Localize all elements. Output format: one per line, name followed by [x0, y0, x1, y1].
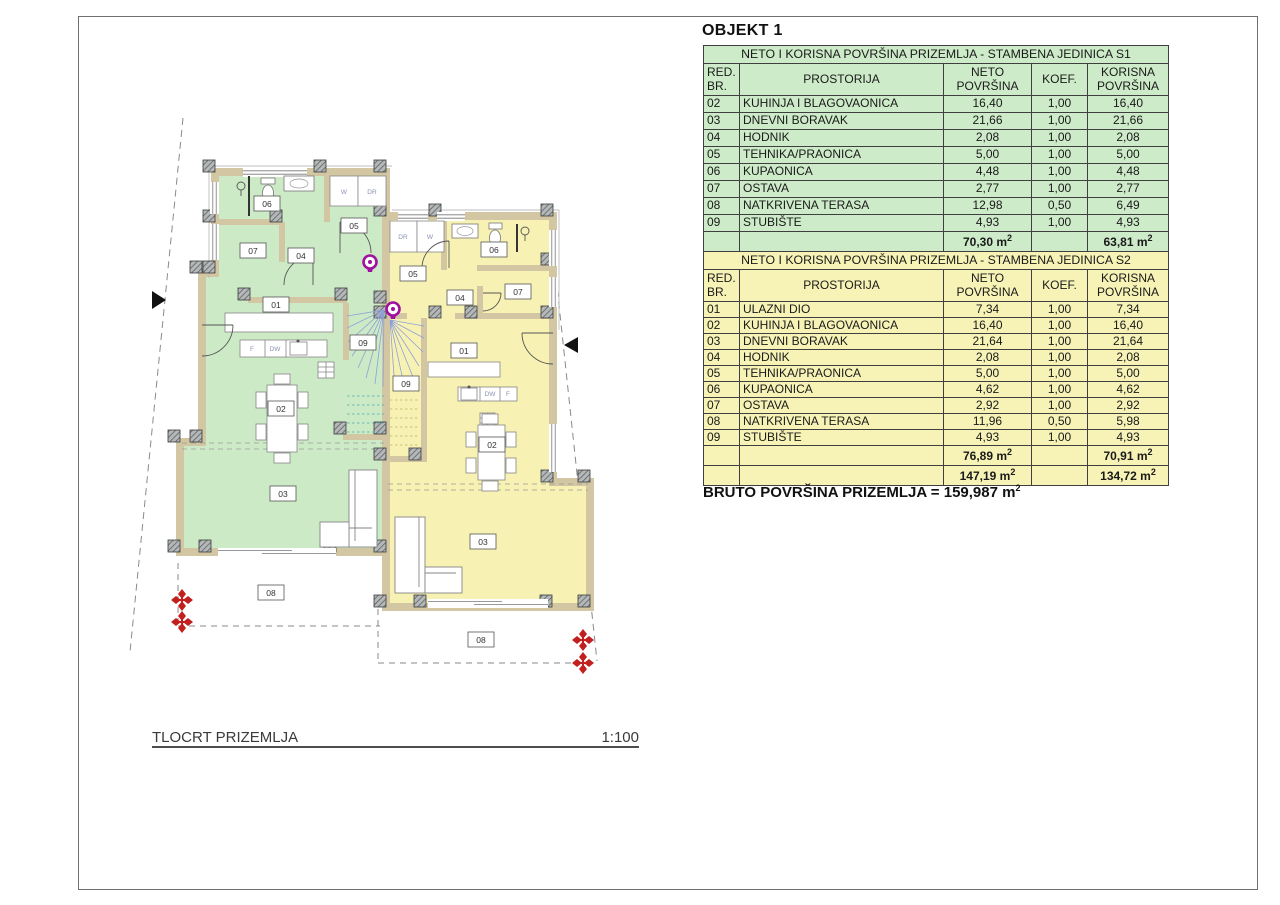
cell-empty [740, 446, 944, 466]
cell-br: 03 [704, 113, 740, 130]
table-row: 09STUBIŠTE4,931,004,93 [704, 430, 1169, 446]
cell-name: HODNIK [740, 350, 944, 366]
cell-neto: 12,98 [944, 198, 1032, 215]
cell-name: NATKRIVENA TERASA [740, 198, 944, 215]
entry-arrow-s1 [152, 291, 166, 309]
dryer-label: DR [398, 234, 408, 241]
table-row: 04HODNIK2,081,002,08 [704, 130, 1169, 147]
svg-text:08: 08 [266, 588, 276, 598]
svg-text:01: 01 [271, 300, 281, 310]
cell-korisna: 2,08 [1088, 350, 1169, 366]
table-s2-header-row: RED.BR. PROSTORIJA NETOPOVRŠINA KOEF. KO… [704, 270, 1169, 302]
cell-name: KUPAONICA [740, 164, 944, 181]
cell-korisna: 2,77 [1088, 181, 1169, 198]
cell-name: ULAZNI DIO [740, 302, 944, 318]
room-label-s1-04: 04 [288, 248, 314, 263]
room-label-s2-01: 01 [451, 343, 477, 358]
table-s1-title-row: NETO I KORISNA POVRŠINA PRIZEMLJA - STAM… [704, 46, 1169, 64]
washer-dryer-s2: DR W [390, 221, 444, 252]
cell-br: 01 [704, 302, 740, 318]
table-row: 02KUHINJA I BLAGOVAONICA16,401,0016,40 [704, 96, 1169, 113]
svg-text:08: 08 [476, 635, 486, 645]
cell-name: KUPAONICA [740, 382, 944, 398]
table-row: 07OSTAVA2,771,002,77 [704, 181, 1169, 198]
cell-neto: 21,64 [944, 334, 1032, 350]
cell-name: TEHNIKA/PRAONICA [740, 366, 944, 382]
table-row: 05TEHNIKA/PRAONICA5,001,005,00 [704, 366, 1169, 382]
table-row: 03DNEVNI BORAVAK21,641,0021,64 [704, 334, 1169, 350]
svg-text:07: 07 [248, 246, 258, 256]
cell-koef: 1,00 [1032, 334, 1088, 350]
title-block: TLOCRT PRIZEMLJA 1:100 [152, 724, 639, 748]
cell-korisna: 2,92 [1088, 398, 1169, 414]
col-header-redbr: RED.BR. [704, 64, 740, 96]
cell-neto: 4,48 [944, 164, 1032, 181]
svg-text:03: 03 [478, 537, 488, 547]
dryer-label: DR [367, 189, 377, 196]
cell-br: 02 [704, 96, 740, 113]
col-header-neto: NETOPOVRŠINA [944, 64, 1032, 96]
cell-koef: 1,00 [1032, 96, 1088, 113]
cell-total-korisna: 63,81 m2 [1088, 232, 1169, 252]
room-label-s2-09: 09 [393, 376, 419, 391]
cell-koef: 1,00 [1032, 302, 1088, 318]
col-header-prostorija: PROSTORIJA [740, 64, 944, 96]
cell-total-neto: 76,89 m2 [944, 446, 1032, 466]
cell-korisna: 7,34 [1088, 302, 1169, 318]
washer-dryer-s1: W DR [330, 176, 386, 206]
cell-korisna: 2,08 [1088, 130, 1169, 147]
svg-text:06: 06 [489, 245, 499, 255]
room-label-s1-08: 08 [258, 585, 284, 600]
col-header-korisna: KORISNAPOVRŠINA [1088, 270, 1169, 302]
room-label-s1-07: 07 [240, 243, 266, 258]
cell-name: OSTAVA [740, 398, 944, 414]
cell-br: 09 [704, 430, 740, 446]
room-label-s2-03: 03 [470, 534, 496, 549]
col-header-neto: NETOPOVRŠINA [944, 270, 1032, 302]
cell-korisna: 4,48 [1088, 164, 1169, 181]
cell-name: DNEVNI BORAVAK [740, 334, 944, 350]
table-row: 01ULAZNI DIO7,341,007,34 [704, 302, 1169, 318]
cell-koef: 1,00 [1032, 181, 1088, 198]
cell-name: HODNIK [740, 130, 944, 147]
cell-neto: 4,62 [944, 382, 1032, 398]
svg-text:05: 05 [408, 269, 418, 279]
cell-neto: 2,08 [944, 130, 1032, 147]
cell-br: 06 [704, 164, 740, 181]
table-row: 02KUHINJA I BLAGOVAONICA16,401,0016,40 [704, 318, 1169, 334]
table-row: 07OSTAVA2,921,002,92 [704, 398, 1169, 414]
col-header-koef: KOEF. [1032, 270, 1088, 302]
cell-br: 06 [704, 382, 740, 398]
cell-br: 03 [704, 334, 740, 350]
survey-marker-icon [572, 652, 594, 674]
cell-empty [1032, 466, 1088, 486]
room-label-s2-04: 04 [447, 290, 473, 305]
svg-text:05: 05 [349, 221, 359, 231]
cell-name: STUBIŠTE [740, 430, 944, 446]
cell-korisna: 4,93 [1088, 215, 1169, 232]
svg-text:07: 07 [513, 287, 523, 297]
col-header-redbr: RED.BR. [704, 270, 740, 302]
cell-koef: 1,00 [1032, 130, 1088, 147]
table-s1-total-row: 70,30 m2 63,81 m2 [704, 232, 1169, 252]
cell-koef: 1,00 [1032, 430, 1088, 446]
fridge-label: F [250, 346, 254, 353]
cell-korisna: 4,62 [1088, 382, 1169, 398]
cell-koef: 0,50 [1032, 198, 1088, 215]
cell-br: 05 [704, 147, 740, 164]
cell-name: OSTAVA [740, 181, 944, 198]
cell-neto: 11,96 [944, 414, 1032, 430]
cell-neto: 4,93 [944, 215, 1032, 232]
table-row: 05TEHNIKA/PRAONICA5,001,005,00 [704, 147, 1169, 164]
table-row: 08NATKRIVENA TERASA11,960,505,98 [704, 414, 1169, 430]
cell-br: 07 [704, 181, 740, 198]
svg-text:02: 02 [276, 404, 286, 414]
room-label-s2-08: 08 [468, 632, 494, 647]
survey-marker-icon [572, 629, 594, 651]
cell-neto: 7,34 [944, 302, 1032, 318]
cell-grand-korisna: 134,72 m2 [1088, 466, 1169, 486]
cell-neto: 4,93 [944, 430, 1032, 446]
fridge-label: F [506, 391, 510, 398]
cell-name: DNEVNI BORAVAK [740, 113, 944, 130]
table-row: 04HODNIK2,081,002,08 [704, 350, 1169, 366]
cell-korisna: 6,49 [1088, 198, 1169, 215]
cell-br: 08 [704, 198, 740, 215]
cell-br: 04 [704, 130, 740, 147]
entry-arrow-s2 [564, 337, 578, 353]
survey-marker-icon [171, 589, 193, 611]
svg-text:04: 04 [455, 293, 465, 303]
room-label-s1-01: 01 [263, 297, 289, 312]
cell-korisna: 16,40 [1088, 318, 1169, 334]
table-s2-total-row: 76,89 m2 70,91 m2 [704, 446, 1169, 466]
col-header-korisna: KORISNAPOVRŠINA [1088, 64, 1169, 96]
cell-neto: 5,00 [944, 366, 1032, 382]
table-row: 08NATKRIVENA TERASA12,980,506,49 [704, 198, 1169, 215]
room-label-s2-02: 02 [479, 437, 505, 452]
table-s1-header-row: RED.BR. PROSTORIJA NETOPOVRŠINA KOEF. KO… [704, 64, 1169, 96]
bruto-area-text: BRUTO POVRŠINA PRIZEMLJA = 159,987 m2 [703, 483, 1020, 501]
table-s1: NETO I KORISNA POVRŠINA PRIZEMLJA - STAM… [703, 45, 1169, 252]
cell-neto: 16,40 [944, 318, 1032, 334]
svg-text:06: 06 [262, 199, 272, 209]
room-label-s2-06: 06 [481, 242, 507, 257]
cell-koef: 1,00 [1032, 366, 1088, 382]
cell-koef: 1,00 [1032, 318, 1088, 334]
drawing-title: TLOCRT PRIZEMLJA [152, 729, 298, 746]
cell-neto: 2,77 [944, 181, 1032, 198]
table-row: 03DNEVNI BORAVAK21,661,0021,66 [704, 113, 1169, 130]
cell-name: KUHINJA I BLAGOVAONICA [740, 96, 944, 113]
room-label-s2-05: 05 [400, 266, 426, 281]
cell-name: TEHNIKA/PRAONICA [740, 147, 944, 164]
cell-br: 09 [704, 215, 740, 232]
table-s2-title-row: NETO I KORISNA POVRŠINA PRIZEMLJA - STAM… [704, 252, 1169, 270]
table-row: 09STUBIŠTE4,931,004,93 [704, 215, 1169, 232]
table-row: 06KUPAONICA4,621,004,62 [704, 382, 1169, 398]
objekt-title: OBJEKT 1 [702, 22, 783, 40]
cell-name: KUHINJA I BLAGOVAONICA [740, 318, 944, 334]
drawing-scale: 1:100 [601, 729, 639, 746]
cell-neto: 2,92 [944, 398, 1032, 414]
cell-koef: 0,50 [1032, 414, 1088, 430]
washer-label: W [341, 189, 348, 196]
table-s2-title: NETO I KORISNA POVRŠINA PRIZEMLJA - STAM… [704, 252, 1169, 270]
cell-koef: 1,00 [1032, 398, 1088, 414]
cell-total-neto: 70,30 m2 [944, 232, 1032, 252]
cell-br: 02 [704, 318, 740, 334]
cell-korisna: 5,00 [1088, 366, 1169, 382]
cell-empty [704, 232, 740, 252]
survey-marker-icon [171, 611, 193, 633]
cell-neto: 21,66 [944, 113, 1032, 130]
cell-koef: 1,00 [1032, 164, 1088, 181]
cell-neto: 16,40 [944, 96, 1032, 113]
col-header-koef: KOEF. [1032, 64, 1088, 96]
svg-text:01: 01 [459, 346, 469, 356]
svg-text:03: 03 [278, 489, 288, 499]
table-s2: NETO I KORISNA POVRŠINA PRIZEMLJA - STAM… [703, 251, 1169, 486]
svg-text:04: 04 [296, 251, 306, 261]
cell-br: 08 [704, 414, 740, 430]
cell-korisna: 4,93 [1088, 430, 1169, 446]
svg-text:02: 02 [487, 440, 497, 450]
cell-name: NATKRIVENA TERASA [740, 414, 944, 430]
cell-name: STUBIŠTE [740, 215, 944, 232]
cell-br: 05 [704, 366, 740, 382]
cell-empty [704, 446, 740, 466]
cell-neto: 5,00 [944, 147, 1032, 164]
room-label-s1-03: 03 [270, 486, 296, 501]
room-label-s1-06: 06 [254, 196, 280, 211]
col-header-prostorija: PROSTORIJA [740, 270, 944, 302]
room-label-s1-09: 09 [350, 335, 376, 350]
room-label-s1-02: 02 [268, 401, 294, 416]
cell-koef: 1,00 [1032, 382, 1088, 398]
cell-koef: 1,00 [1032, 350, 1088, 366]
dishwasher-label: DW [270, 346, 282, 353]
cell-korisna: 21,64 [1088, 334, 1169, 350]
washer-label: W [427, 234, 434, 241]
cell-empty [1032, 446, 1088, 466]
cell-koef: 1,00 [1032, 147, 1088, 164]
svg-text:09: 09 [358, 338, 368, 348]
cell-neto: 2,08 [944, 350, 1032, 366]
area-tables: NETO I KORISNA POVRŠINA PRIZEMLJA - STAM… [703, 45, 1169, 486]
cell-korisna: 5,98 [1088, 414, 1169, 430]
dishwasher-label: DW [485, 391, 497, 398]
table-s1-title: NETO I KORISNA POVRŠINA PRIZEMLJA - STAM… [704, 46, 1169, 64]
room-label-s2-07: 07 [505, 284, 531, 299]
cell-empty [740, 232, 944, 252]
cell-korisna: 21,66 [1088, 113, 1169, 130]
cell-korisna: 16,40 [1088, 96, 1169, 113]
cell-br: 07 [704, 398, 740, 414]
room-label-s1-05: 05 [341, 218, 367, 233]
cell-empty [1032, 232, 1088, 252]
cell-br: 04 [704, 350, 740, 366]
cell-koef: 1,00 [1032, 113, 1088, 130]
cell-total-korisna: 70,91 m2 [1088, 446, 1169, 466]
cell-koef: 1,00 [1032, 215, 1088, 232]
floorplan-drawing: W DR DR W F DW DW F 06 07 04 05 01 09 02… [100, 100, 700, 690]
table-row: 06KUPAONICA4,481,004,48 [704, 164, 1169, 181]
cell-korisna: 5,00 [1088, 147, 1169, 164]
svg-text:09: 09 [401, 379, 411, 389]
